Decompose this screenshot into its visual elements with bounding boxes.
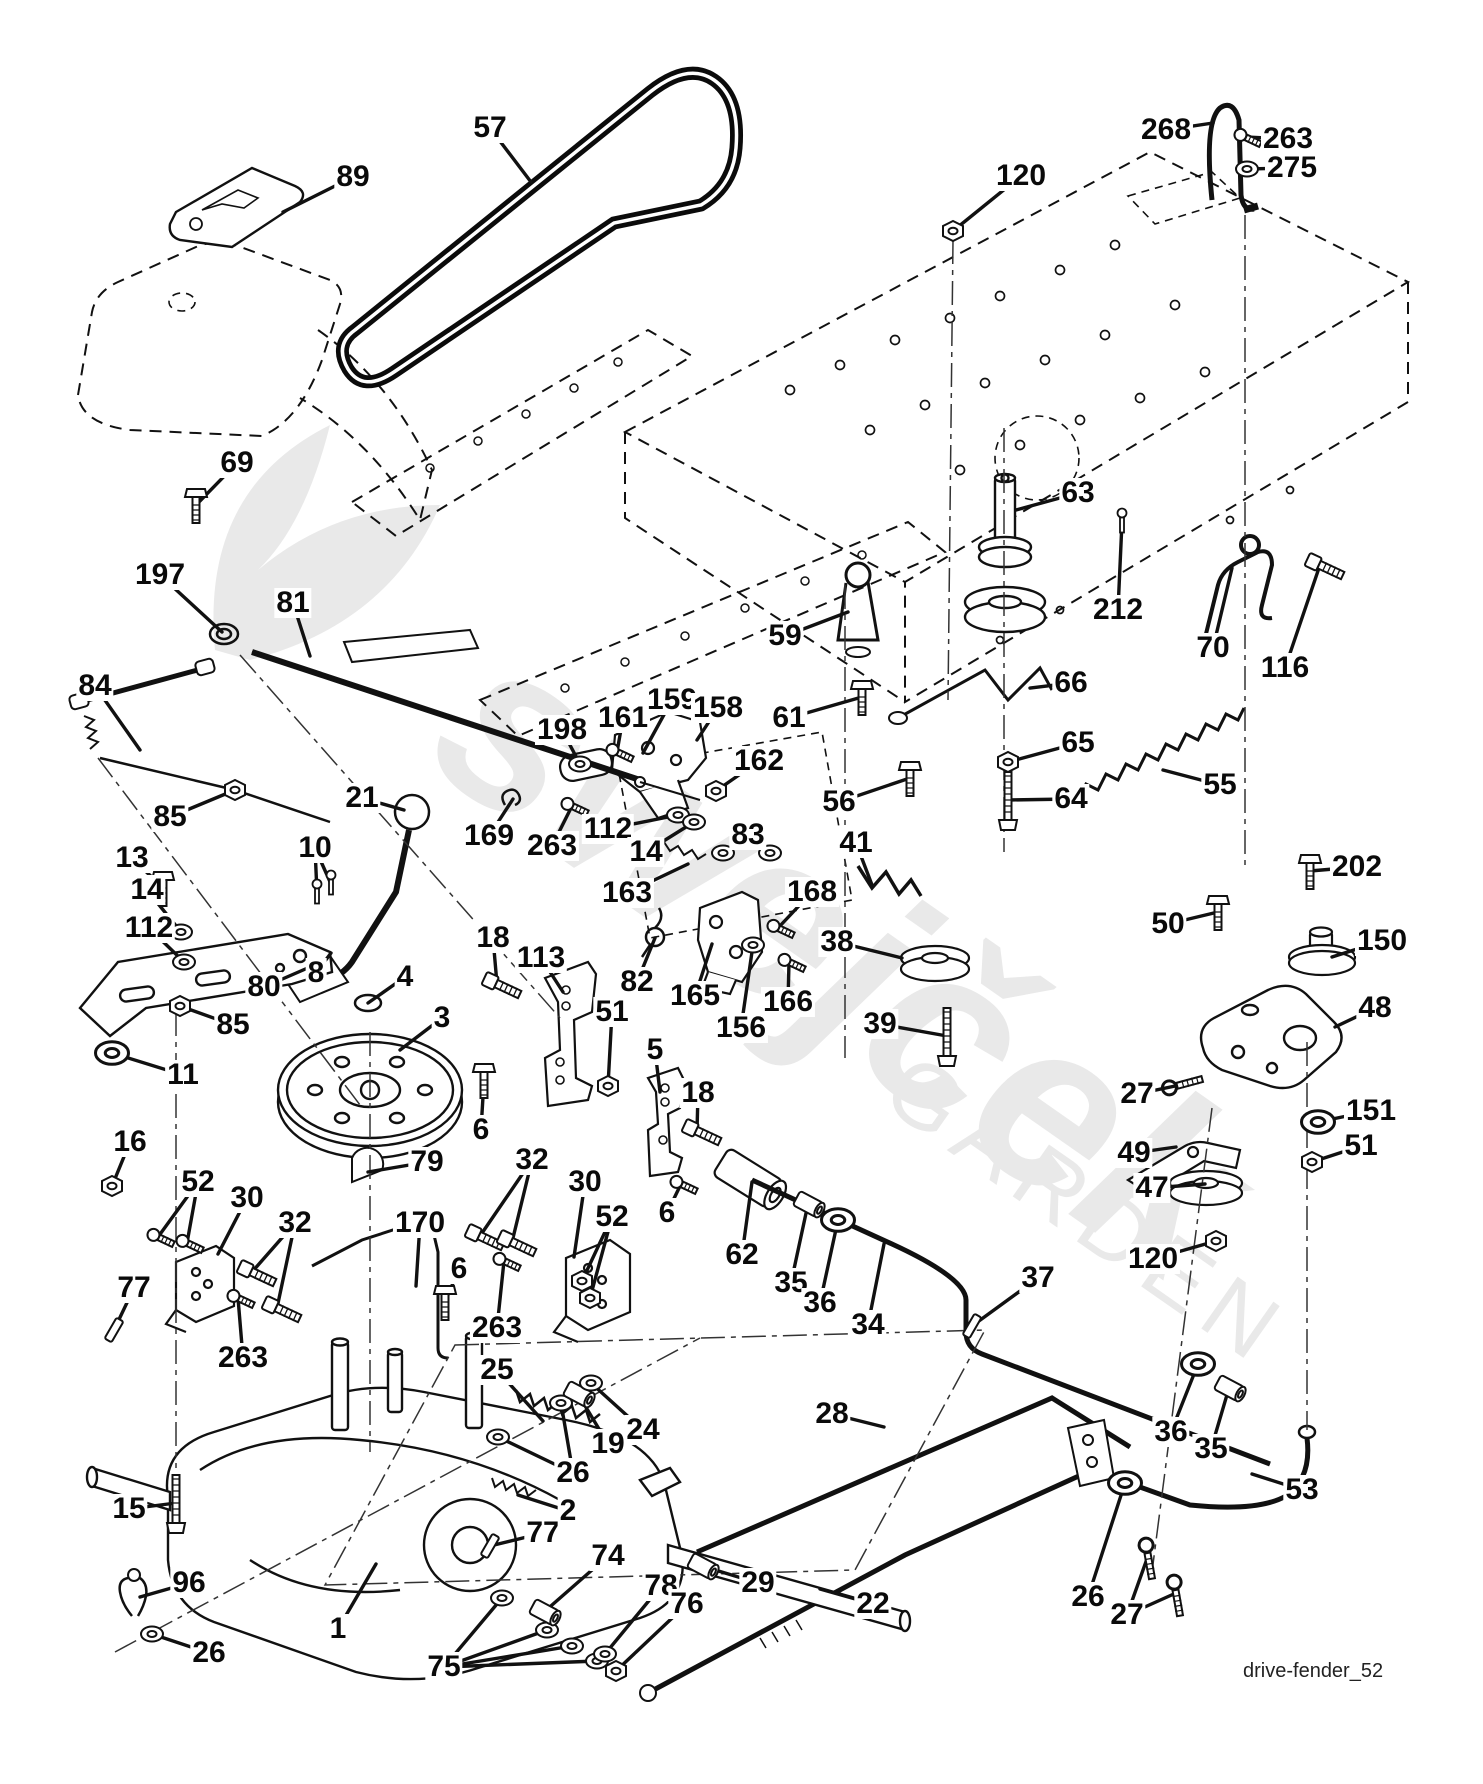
- part-callout-34: 34: [849, 1310, 886, 1340]
- part-callout-77: 77: [524, 1518, 561, 1548]
- part-callout-36: 36: [1152, 1417, 1189, 1447]
- screwv-part-icon: [313, 880, 322, 904]
- nut-part-icon: [170, 996, 190, 1016]
- nut-part-icon: [606, 1661, 626, 1681]
- part-callout-263: 263: [216, 1343, 270, 1373]
- screw-part-icon: [491, 1251, 521, 1274]
- part-callout-52: 52: [593, 1202, 630, 1232]
- washer-part-icon: [173, 955, 195, 970]
- boltlong-part-icon: [938, 1008, 956, 1066]
- part-callout-50: 50: [1149, 909, 1186, 939]
- part-callout-21: 21: [343, 783, 380, 813]
- screw-part-icon: [225, 1288, 255, 1311]
- part-callout-75: 75: [425, 1652, 462, 1682]
- part-callout-49: 49: [1115, 1138, 1152, 1168]
- washer-part-icon: [561, 1639, 583, 1654]
- part-callout-62: 62: [723, 1240, 760, 1270]
- part-callout-56: 56: [820, 787, 857, 817]
- part-callout-197: 197: [133, 560, 187, 590]
- part-callout-14: 14: [627, 837, 664, 867]
- nut-part-icon: [580, 1288, 600, 1308]
- screw-part-icon: [668, 1174, 698, 1197]
- part-callout-51: 51: [593, 997, 630, 1027]
- part-callout-150: 150: [1355, 926, 1409, 956]
- part-callout-263: 263: [1261, 124, 1315, 154]
- part-callout-275: 275: [1265, 153, 1319, 183]
- boltv-part-icon: [473, 1064, 495, 1098]
- nut-part-icon: [1206, 1231, 1226, 1251]
- nut-part-icon: [225, 780, 245, 800]
- part-callout-79: 79: [408, 1147, 445, 1177]
- part-callout-85: 85: [214, 1010, 251, 1040]
- part-callout-268: 268: [1139, 115, 1193, 145]
- part-callout-26: 26: [554, 1458, 591, 1488]
- part-callout-112: 112: [123, 913, 175, 943]
- nut-part-icon: [1302, 1152, 1322, 1172]
- part-callout-1: 1: [328, 1614, 349, 1644]
- part-callout-158: 158: [691, 693, 745, 723]
- part-callout-18: 18: [679, 1078, 716, 1108]
- part-callout-47: 47: [1133, 1173, 1170, 1203]
- part-callout-27: 27: [1108, 1600, 1145, 1630]
- washer-part-icon: [1236, 162, 1258, 177]
- part-callout-165: 165: [668, 981, 722, 1011]
- spacer-part-icon: [529, 1599, 563, 1627]
- spacer-part-icon: [687, 1553, 721, 1581]
- bolt-part-icon: [261, 1296, 302, 1325]
- part-callout-120: 120: [994, 161, 1048, 191]
- parts-diagram-canvas: swejček GARDEN: [0, 0, 1483, 1784]
- part-callout-3: 3: [432, 1003, 453, 1033]
- screw-part-icon: [145, 1227, 175, 1250]
- washerbig-part-icon: [1302, 1111, 1335, 1134]
- part-callout-36: 36: [801, 1288, 838, 1318]
- washer-part-icon: [594, 1647, 616, 1662]
- part-callout-48: 48: [1356, 993, 1393, 1023]
- part-callout-161: 161: [596, 703, 650, 733]
- part-callout-2: 2: [558, 1496, 579, 1526]
- part-callout-6: 6: [657, 1198, 678, 1228]
- washer-part-icon: [487, 1430, 509, 1445]
- boltv-part-icon: [434, 1286, 456, 1320]
- part-callout-69: 69: [218, 448, 255, 478]
- part-callout-38: 38: [818, 927, 855, 957]
- part-callout-212: 212: [1091, 595, 1145, 625]
- boltv-part-icon: [185, 489, 207, 523]
- key-part-icon: [963, 1314, 982, 1339]
- part-callout-26: 26: [190, 1638, 227, 1668]
- screwv-part-icon: [327, 871, 336, 895]
- bolt-part-icon: [1304, 553, 1345, 582]
- washer-part-icon: [742, 938, 764, 953]
- part-callout-151: 151: [1344, 1096, 1398, 1126]
- part-callout-25: 25: [478, 1355, 515, 1385]
- part-callout-82: 82: [618, 967, 655, 997]
- part-callout-202: 202: [1330, 852, 1384, 882]
- part-callout-66: 66: [1052, 668, 1089, 698]
- part-callout-24: 24: [624, 1415, 661, 1445]
- part-callout-13: 13: [113, 843, 150, 873]
- part-callout-169: 169: [462, 821, 516, 851]
- washer-part-icon: [580, 1376, 602, 1391]
- part-callout-30: 30: [566, 1167, 603, 1197]
- part-callout-263: 263: [470, 1313, 524, 1343]
- part-callout-85: 85: [151, 802, 188, 832]
- part-callout-5: 5: [645, 1035, 666, 1065]
- nut-part-icon: [943, 221, 963, 241]
- part-callout-39: 39: [861, 1009, 898, 1039]
- nut-part-icon: [706, 781, 726, 801]
- part-callout-96: 96: [170, 1568, 207, 1598]
- part-callout-89: 89: [334, 162, 371, 192]
- screw-part-icon: [765, 918, 795, 941]
- eyeboltv-part-icon: [1135, 1536, 1163, 1581]
- part-callout-156: 156: [714, 1013, 768, 1043]
- nut-part-icon: [598, 1076, 618, 1096]
- part-callout-15: 15: [110, 1494, 147, 1524]
- nut-part-icon: [102, 1176, 122, 1196]
- part-callout-18: 18: [474, 923, 511, 953]
- part-callout-63: 63: [1059, 478, 1096, 508]
- part-callout-80: 80: [245, 972, 282, 1002]
- part-callout-70: 70: [1194, 633, 1231, 663]
- drawing-title: drive-fender_52: [1243, 1660, 1383, 1683]
- nut-part-icon: [998, 752, 1018, 772]
- part-callout-29: 29: [739, 1568, 776, 1598]
- part-callout-41: 41: [837, 828, 874, 858]
- part-callout-19: 19: [589, 1429, 626, 1459]
- screwv-part-icon: [1118, 509, 1127, 533]
- part-callout-8: 8: [306, 958, 327, 988]
- part-callout-4: 4: [395, 962, 416, 992]
- part-callout-116: 116: [1259, 653, 1311, 683]
- part-callout-263: 263: [525, 831, 579, 861]
- bolt-part-icon: [681, 1119, 722, 1148]
- part-callout-84: 84: [76, 671, 113, 701]
- part-callout-32: 32: [513, 1145, 550, 1175]
- part-callout-11: 11: [165, 1060, 201, 1090]
- part-callout-27: 27: [1118, 1079, 1155, 1109]
- part-callout-35: 35: [1192, 1434, 1229, 1464]
- part-callout-32: 32: [276, 1208, 313, 1238]
- part-callout-22: 22: [854, 1589, 891, 1619]
- part-callout-10: 10: [296, 833, 333, 863]
- part-callout-53: 53: [1283, 1475, 1320, 1505]
- spacer-part-icon: [1214, 1375, 1248, 1403]
- part-callout-59: 59: [766, 621, 803, 651]
- washerbig-part-icon: [822, 1209, 855, 1232]
- part-callout-166: 166: [761, 987, 815, 1017]
- washerbig-part-icon: [1109, 1472, 1142, 1495]
- part-callout-37: 37: [1019, 1263, 1056, 1293]
- part-callout-170: 170: [393, 1208, 447, 1238]
- part-callout-83: 83: [729, 820, 766, 850]
- part-callout-64: 64: [1052, 784, 1089, 814]
- part-callout-28: 28: [813, 1399, 850, 1429]
- part-callout-57: 57: [471, 113, 508, 143]
- part-callout-6: 6: [449, 1254, 470, 1284]
- part-callout-168: 168: [785, 877, 839, 907]
- part-callout-81: 81: [274, 588, 311, 618]
- bolt-part-icon: [481, 972, 522, 1001]
- part-callout-52: 52: [179, 1167, 216, 1197]
- part-callout-77: 77: [115, 1273, 152, 1303]
- part-callout-16: 16: [111, 1127, 148, 1157]
- washer-part-icon: [491, 1591, 513, 1606]
- washer-part-icon: [141, 1627, 163, 1642]
- part-callout-76: 76: [668, 1589, 705, 1619]
- part-callout-6: 6: [471, 1115, 492, 1145]
- part-callout-120: 120: [1126, 1244, 1180, 1274]
- part-callout-55: 55: [1201, 770, 1238, 800]
- eyebolt-part-icon: [1161, 1072, 1204, 1096]
- key-part-icon: [105, 1318, 124, 1343]
- part-callout-26: 26: [1069, 1582, 1106, 1612]
- part-callout-113: 113: [515, 943, 567, 973]
- part-callout-30: 30: [228, 1183, 265, 1213]
- part-callout-162: 162: [732, 746, 786, 776]
- part-callout-65: 65: [1059, 728, 1096, 758]
- screw-part-icon: [776, 952, 806, 975]
- washerbig-part-icon: [96, 1042, 129, 1065]
- part-callout-14: 14: [128, 875, 165, 905]
- callout-overlay: [0, 0, 1483, 1784]
- part-callout-51: 51: [1342, 1131, 1379, 1161]
- washerbig-part-icon: [1182, 1353, 1215, 1376]
- part-callout-74: 74: [589, 1541, 626, 1571]
- washer-part-icon: [683, 815, 705, 830]
- part-callout-198: 198: [535, 715, 589, 745]
- washer-part-icon: [569, 757, 591, 772]
- part-callout-61: 61: [770, 703, 807, 733]
- part-callout-163: 163: [600, 878, 654, 908]
